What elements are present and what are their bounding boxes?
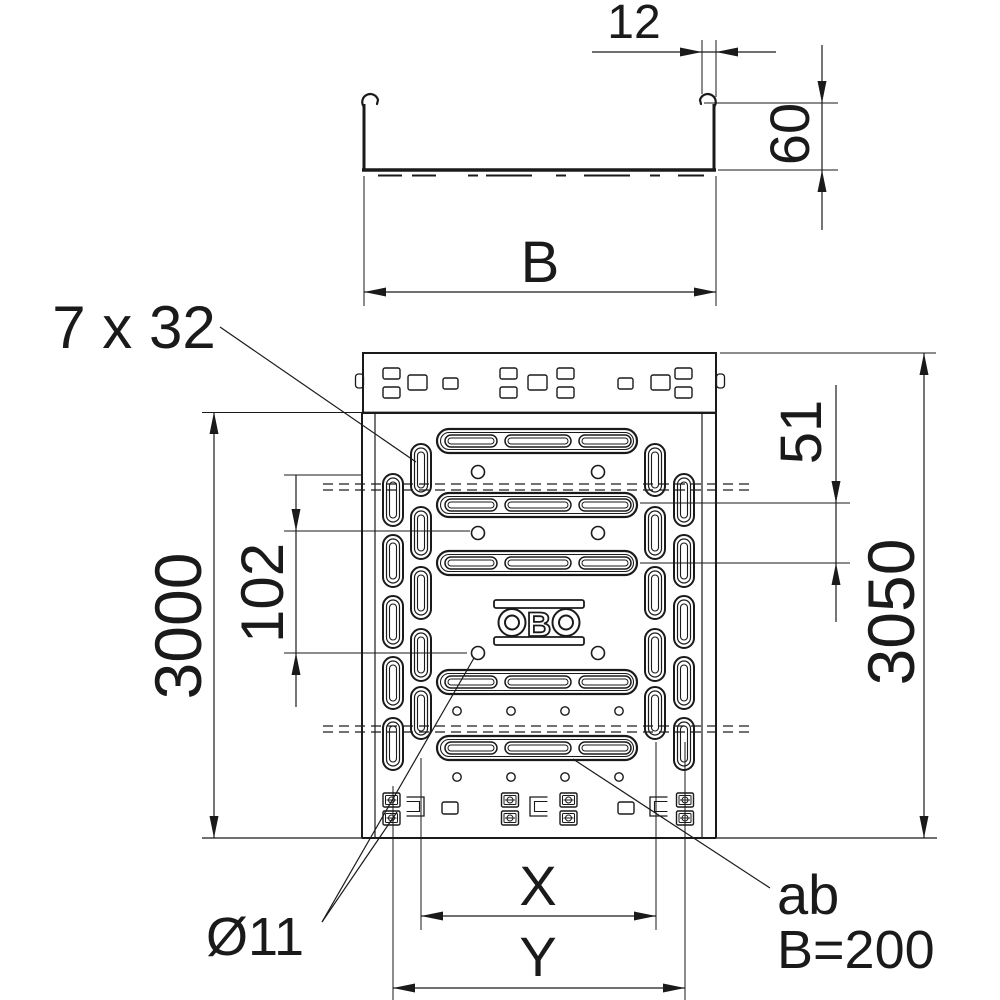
bottom-slot xyxy=(505,557,571,569)
dimension-arrowhead xyxy=(694,288,716,297)
bottom-slot xyxy=(505,499,571,511)
plate-hole xyxy=(383,368,400,379)
small-round-hole xyxy=(453,773,461,781)
leader-hole-diameter xyxy=(322,812,397,922)
dim-side-height-label: 60 xyxy=(758,103,821,165)
plate-hole xyxy=(675,387,692,398)
plate-hole xyxy=(500,368,517,379)
plate-hole xyxy=(528,375,547,390)
plate-hole xyxy=(500,387,517,398)
leader-hole-diameter xyxy=(322,658,474,922)
side-slot xyxy=(418,452,425,488)
side-slot xyxy=(415,571,428,615)
obo-logo-letter: B xyxy=(527,606,552,644)
side-slot xyxy=(415,511,428,555)
bottom-slot xyxy=(448,502,494,508)
bottom-slot xyxy=(448,438,494,444)
bottom-slot xyxy=(579,557,631,569)
dimension-arrowhead xyxy=(292,509,301,531)
fixing-bracket xyxy=(530,797,547,816)
side-slot xyxy=(415,691,428,735)
plate-hole xyxy=(383,387,400,398)
drawing-sheet: 12 60 B 7 x 32 3000 102 51 3050 Ø11 X Y … xyxy=(0,0,1000,1000)
bottom-slot xyxy=(582,560,628,566)
dimension-arrowhead xyxy=(421,912,443,921)
dim-hole-spacing-label: 102 xyxy=(229,543,296,643)
bottom-slot xyxy=(582,502,628,508)
coupler-plate xyxy=(363,353,716,413)
logo-ring-o xyxy=(499,609,526,636)
bottom-slot xyxy=(579,435,631,447)
dim-width-b-label: B xyxy=(521,230,560,295)
side-slot xyxy=(418,575,425,611)
side-slot xyxy=(418,637,425,673)
round-hole-11 xyxy=(592,647,605,660)
plate-hole xyxy=(675,368,692,379)
side-slot xyxy=(649,633,662,677)
small-round-hole xyxy=(615,707,623,715)
small-round-hole xyxy=(507,707,515,715)
note-b200-label: B=200 xyxy=(777,920,935,980)
bottom-slot xyxy=(505,742,571,754)
dim-rim-width-label: 12 xyxy=(607,0,660,49)
logo-ring-o xyxy=(559,616,573,630)
coupler-tab xyxy=(717,374,725,388)
side-slot xyxy=(390,665,397,701)
dimension-arrowhead xyxy=(210,412,219,434)
bottom-slot xyxy=(445,557,497,569)
dimension-arrowhead xyxy=(920,816,929,838)
dim-slot-spacing-label: 51 xyxy=(769,400,834,465)
dim-length-3000-label: 3000 xyxy=(141,553,215,700)
bottom-slot xyxy=(579,499,631,511)
side-slot xyxy=(387,661,400,705)
dimension-arrowhead xyxy=(680,48,702,57)
bottom-slot xyxy=(445,499,497,511)
fixing-bracket xyxy=(535,802,548,812)
side-slot xyxy=(652,637,659,673)
bottom-slot xyxy=(508,679,568,685)
bottom-slot xyxy=(445,676,497,688)
side-slot xyxy=(649,571,662,615)
round-hole-11 xyxy=(592,466,605,479)
fixing-rect-hole xyxy=(442,802,458,814)
plan-view-tray-body xyxy=(356,353,725,838)
side-slot xyxy=(681,665,688,701)
bottom-slot xyxy=(508,438,568,444)
logo-ring-o xyxy=(553,609,580,636)
leader-note-ab xyxy=(573,759,770,888)
small-round-hole xyxy=(561,773,569,781)
dimension-arrowhead xyxy=(663,984,685,993)
round-hole-11 xyxy=(472,466,485,479)
side-slot xyxy=(390,604,397,640)
side-slot xyxy=(387,722,400,766)
small-round-hole xyxy=(615,773,623,781)
fixing-rect-hole xyxy=(618,802,634,814)
side-slot xyxy=(678,722,691,766)
side-slot xyxy=(681,543,688,579)
side-slot xyxy=(652,515,659,551)
note-ab-label: ab xyxy=(777,863,839,926)
fixing-bracket xyxy=(650,797,667,816)
side-slot xyxy=(387,600,400,644)
dimension-arrowhead xyxy=(818,81,827,103)
side-slot xyxy=(649,448,662,492)
side-slot xyxy=(652,575,659,611)
side-slot xyxy=(387,539,400,583)
dimension-arrowhead xyxy=(364,288,386,297)
dimension-arrowhead xyxy=(832,481,841,503)
side-slot xyxy=(390,482,397,518)
side-slot xyxy=(681,604,688,640)
bottom-slot xyxy=(579,742,631,754)
side-slot xyxy=(649,691,662,735)
fixing-bracket xyxy=(407,802,420,812)
side-slot xyxy=(415,633,428,677)
bottom-slot xyxy=(579,676,631,688)
slot-size-label: 7 x 32 xyxy=(52,294,215,361)
cross-section-dimensions xyxy=(364,40,838,306)
dimension-arrowhead xyxy=(292,653,301,675)
bottom-slot xyxy=(582,438,628,444)
cross-section-view xyxy=(362,94,716,175)
dimension-arrowhead xyxy=(634,912,656,921)
round-hole-11 xyxy=(592,527,605,540)
bottom-slot xyxy=(505,435,571,447)
dim-total-length-label: 3050 xyxy=(854,539,928,686)
small-round-hole xyxy=(561,707,569,715)
round-hole-11 xyxy=(472,527,485,540)
bottom-slot xyxy=(508,560,568,566)
bottom-slot xyxy=(508,502,568,508)
dimension-arrowhead xyxy=(716,48,738,57)
leader-slot-size xyxy=(220,327,416,462)
plate-hole xyxy=(651,375,670,390)
logo-ring-o xyxy=(505,616,519,630)
bottom-slot xyxy=(448,560,494,566)
cable-tray-technical-drawing: 12 60 B 7 x 32 3000 102 51 3050 Ø11 X Y … xyxy=(0,0,1000,1000)
dimension-arrowhead xyxy=(393,984,415,993)
side-slot xyxy=(678,539,691,583)
plate-hole xyxy=(408,375,427,390)
dim-y-label: Y xyxy=(519,925,556,988)
bottom-slot xyxy=(505,676,571,688)
side-slot xyxy=(681,482,688,518)
bottom-slot xyxy=(582,679,628,685)
small-round-hole xyxy=(507,773,515,781)
side-slot xyxy=(649,511,662,555)
side-slot xyxy=(390,543,397,579)
side-slot xyxy=(415,448,428,492)
bottom-slot xyxy=(448,745,494,751)
hole-diameter-label: Ø11 xyxy=(206,907,304,967)
side-slot xyxy=(652,452,659,488)
dimension-arrowhead xyxy=(920,353,929,375)
dimension-arrowhead xyxy=(832,563,841,585)
dimension-arrowhead xyxy=(818,170,827,192)
plate-hole xyxy=(557,368,574,379)
round-hole-11 xyxy=(472,647,485,660)
bottom-slot xyxy=(445,435,497,447)
bottom-slot xyxy=(445,742,497,754)
dim-x-label: X xyxy=(519,854,556,917)
plate-hole xyxy=(618,378,633,389)
side-slot xyxy=(418,515,425,551)
bottom-slot xyxy=(508,745,568,751)
bottom-slot xyxy=(582,745,628,751)
small-round-hole xyxy=(453,707,461,715)
side-slot xyxy=(678,600,691,644)
dimension-arrowhead xyxy=(210,816,219,838)
bottom-slot xyxy=(448,679,494,685)
plate-hole xyxy=(557,387,574,398)
plate-hole xyxy=(443,378,458,389)
side-slot xyxy=(678,661,691,705)
